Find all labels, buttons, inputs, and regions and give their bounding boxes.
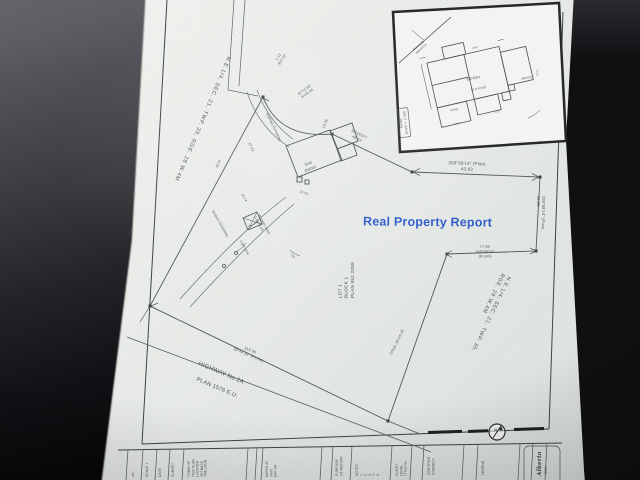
dim-19-28: 19.28 xyxy=(322,119,330,130)
bearing-east-boundary: 269°58′14″ (Plan) 39.05 xyxy=(534,196,545,230)
inset-driveway-label: Concrete Driveway xyxy=(410,38,428,55)
titleblock-file-no: No. xyxy=(132,472,136,477)
inset-scale-label: Detail Scale = 1:250 xyxy=(397,107,411,138)
inset-garage-label: Garage xyxy=(521,74,532,80)
inset-eave-label: (Eave 0.6) xyxy=(470,84,486,91)
inset-deck-label: Deck xyxy=(450,106,458,111)
titleblock-alberta-logo: Alberta xyxy=(536,451,542,476)
bearing-corner: 2.12 302°22′ xyxy=(271,47,291,71)
titleblock-scale: SCALE 1: xyxy=(146,462,150,477)
bearing-northwest: 30°45′57″ 45.73 xyxy=(342,126,374,149)
asphalt-driveway-label: Asphalt Driveway xyxy=(264,112,282,143)
dim-7-04: 7.04 xyxy=(289,252,295,260)
gravel-driveway-label: Gravel Driveway xyxy=(210,210,229,238)
bearing-jog: 77.88 359°58′14″ (PLAN) xyxy=(468,245,502,260)
titleblock-town-paragraph: TOWN OF THIS PLAN LOCATED SETBACK THE LA… xyxy=(188,459,209,477)
bearing-arc: 62°51′30″ R=45.00 xyxy=(294,82,319,104)
dim-15-92: 15.92 xyxy=(214,158,221,168)
section-label-right: N.E.1/4, SEC. 21, TWP. 35, RGE. 28 W.4M xyxy=(458,272,512,364)
dim-37-51: 37.51 xyxy=(246,142,255,153)
section-label-left: N.E.1/4, SEC. 21, TWP. 35, RGE. 28 W.4M xyxy=(173,55,232,182)
titleblock-purpose: PURPOSE OF REPORT xyxy=(336,456,344,476)
inset-dim-2-44: 2.44 xyxy=(454,121,460,126)
see-detail-label: See Detail xyxy=(298,158,322,176)
bearing-highway: 119.06 30°44′39″ (PLAN) xyxy=(228,341,269,366)
titleblock-certified: CERTIFIED CORRECT xyxy=(428,457,436,475)
plan-labels: N.E.1/4, SEC. 21, TWP. 35, RGE. 28 W.4M … xyxy=(0,0,640,480)
inset-dim-13-1: 13.1 xyxy=(494,109,500,114)
bearing-southeast: 30°44′39″ (Plan) xyxy=(388,328,404,355)
dim-18-74: 18.74 xyxy=(239,193,247,203)
inset-dim-24-0: 24.0 xyxy=(472,45,478,50)
titleblock-date: DATE xyxy=(159,468,163,477)
lot-block-plan-label: LOT 1 BLOCK 1 PLAN 952 2259 xyxy=(338,262,356,298)
titleblock-legend: LEGEND xyxy=(482,461,486,475)
titleblock-client: CLIENT: LEGAL: TITLE No. xyxy=(396,460,408,476)
titleblock-cmc: CMC xyxy=(545,466,549,474)
real-property-report-title: Real Property Report xyxy=(363,215,492,230)
north-arrow-letter: N xyxy=(494,428,498,434)
photo-of-survey-document: N.E.1/4, SEC. 21, TWP. 35, RGE. 28 W.4M … xyxy=(0,0,640,480)
inset-dim-6-10: 6.10 xyxy=(534,70,538,76)
bearing-north-boundary: 359°58′14″ (Plan) 43.63 xyxy=(442,161,493,174)
inset-house-label: HOUSE xyxy=(465,73,480,81)
titleblock-survey: SURVEY xyxy=(172,463,176,477)
titleblock-dated-at: DATED AT THIS DAY OF xyxy=(266,460,278,477)
light-pole-label: Light pole xyxy=(238,240,249,256)
dim-13-45: 13.45 xyxy=(299,190,309,197)
shed-label: Wooden shed 3.05×2.44 xyxy=(252,214,270,238)
titleblock-notes: NOTES: 1. 2. 3. 4. 5. xyxy=(356,463,381,476)
